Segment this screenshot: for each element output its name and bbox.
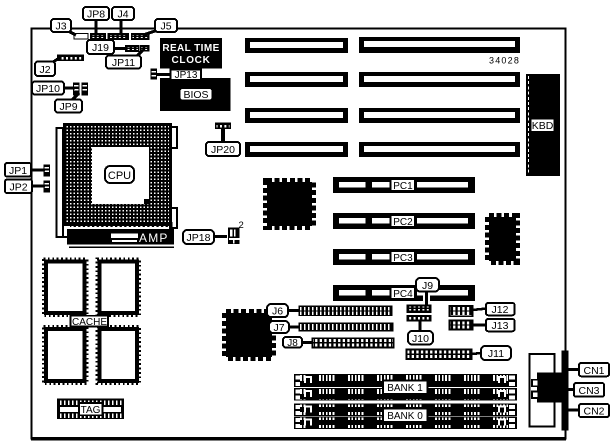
svg-text:CN3: CN3 — [578, 385, 599, 397]
svg-text:J2: J2 — [39, 64, 50, 76]
svg-text:JP13: JP13 — [175, 70, 198, 81]
svg-text:J10: J10 — [412, 333, 429, 345]
svg-text:J6: J6 — [272, 306, 283, 318]
svg-text:JP1: JP1 — [9, 165, 27, 177]
svg-text:JP2: JP2 — [9, 182, 27, 194]
svg-text:CN2: CN2 — [583, 406, 604, 418]
svg-text:PC1: PC1 — [393, 181, 413, 192]
svg-text:JP18: JP18 — [187, 232, 211, 244]
svg-text:JP20: JP20 — [211, 144, 235, 156]
svg-text:J5: J5 — [160, 21, 171, 33]
svg-text:CPU: CPU — [108, 170, 131, 182]
svg-text:CN1: CN1 — [583, 365, 604, 377]
svg-text:J8: J8 — [287, 338, 298, 349]
svg-text:CACHE: CACHE — [72, 317, 107, 328]
svg-text:2: 2 — [239, 220, 244, 231]
svg-text:BANK 0: BANK 0 — [387, 411, 423, 422]
svg-text:J13: J13 — [492, 320, 509, 332]
svg-text:JP9: JP9 — [59, 101, 77, 113]
svg-text:AMP: AMP — [139, 231, 169, 245]
svg-text:J3: J3 — [55, 21, 66, 33]
svg-text:34028: 34028 — [489, 56, 520, 66]
svg-text:TAG: TAG — [81, 405, 101, 416]
svg-text:J12: J12 — [492, 304, 509, 316]
svg-text:PC3: PC3 — [393, 253, 413, 264]
svg-text:J7: J7 — [273, 322, 284, 334]
svg-text:PC4: PC4 — [393, 289, 413, 300]
svg-text:REAL TIME: REAL TIME — [162, 43, 219, 54]
svg-text:J4: J4 — [117, 9, 128, 21]
svg-text:JP8: JP8 — [87, 9, 105, 21]
svg-text:KBD: KBD — [532, 120, 554, 132]
svg-text:J19: J19 — [92, 42, 109, 54]
svg-text:BANK 1: BANK 1 — [387, 383, 423, 394]
svg-text:CLOCK: CLOCK — [171, 55, 210, 66]
svg-text:JP11: JP11 — [112, 57, 135, 69]
svg-text:J11: J11 — [488, 348, 504, 360]
svg-text:JP10: JP10 — [36, 83, 60, 95]
svg-text:J9: J9 — [422, 280, 433, 292]
svg-text:BIOS: BIOS — [183, 89, 208, 101]
svg-text:PC2: PC2 — [393, 217, 413, 228]
